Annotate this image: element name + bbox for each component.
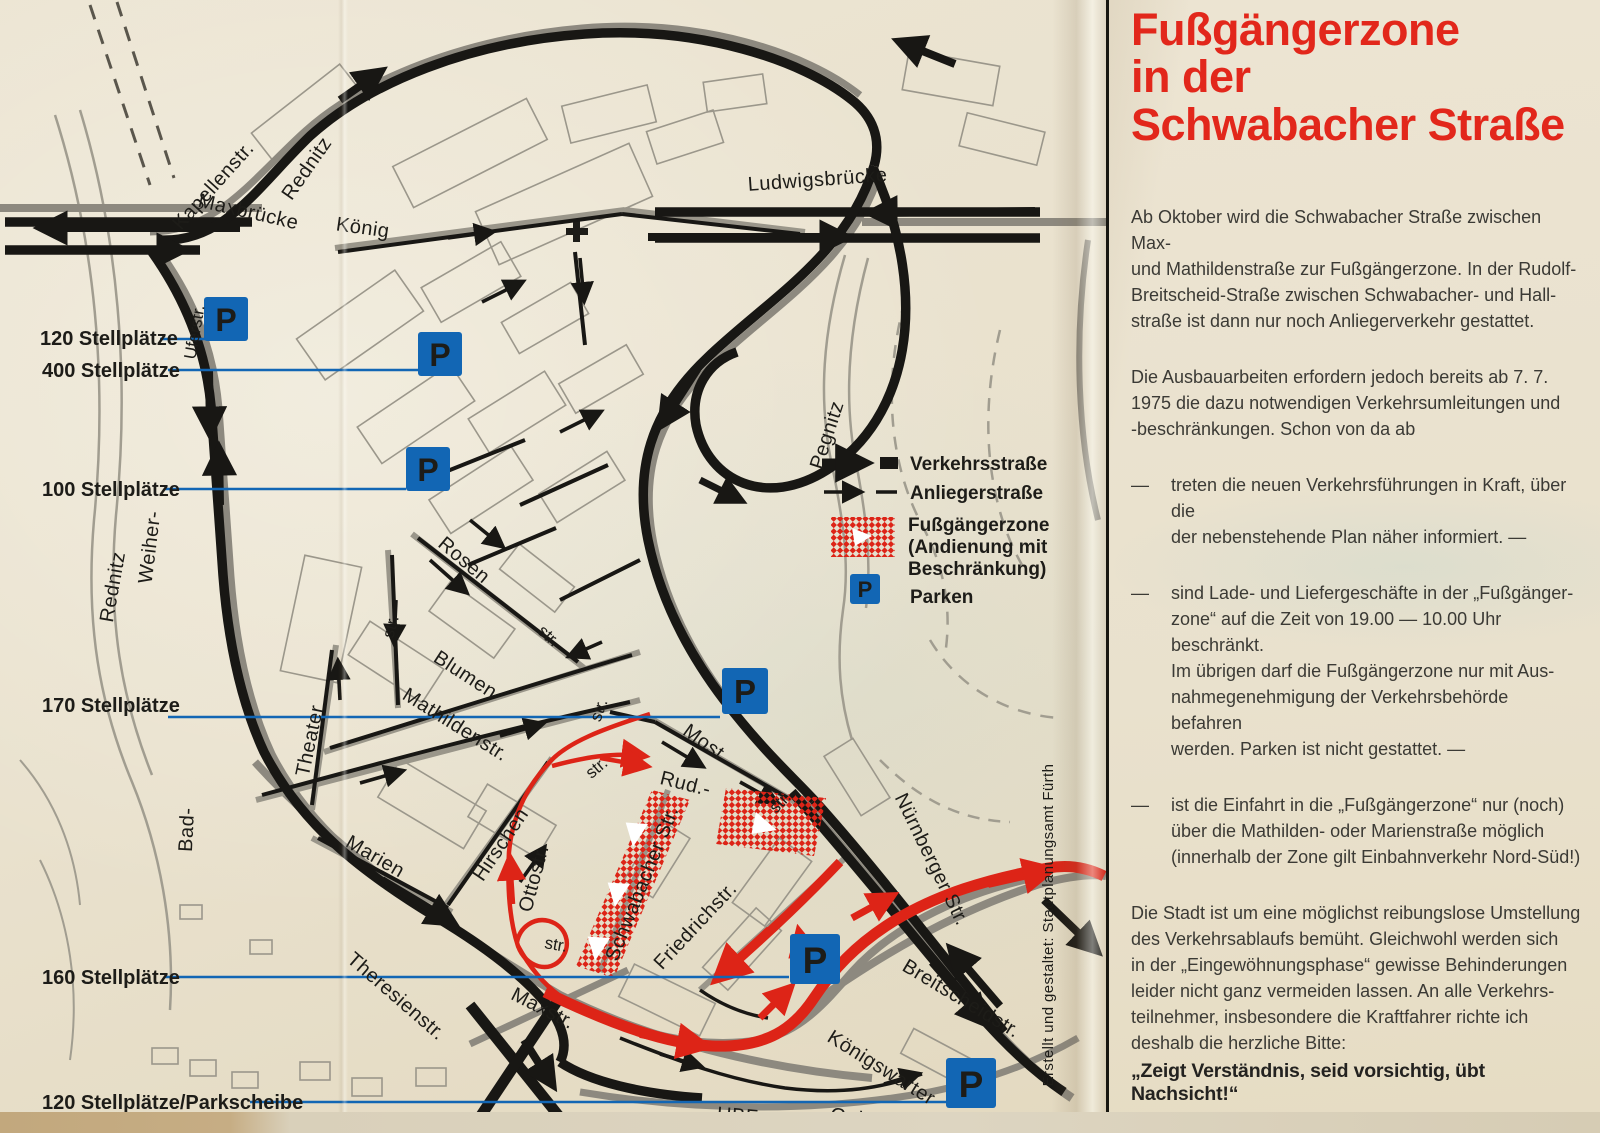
svg-text:P: P xyxy=(215,302,236,338)
appeal-quote: „Zeigt Verständnis, seid vorsichtig, übt… xyxy=(1131,1060,1583,1106)
parking-label-170: 170 Stellplätze xyxy=(42,695,180,717)
street-label: Rednitz xyxy=(96,550,130,624)
street-label: str. xyxy=(543,933,569,956)
parking-label-400: 400 Stellplätze xyxy=(42,360,180,382)
bullet-dash: — xyxy=(1131,580,1171,762)
construction-paragraph: Die Ausbauarbeiten erfordern jedoch bere… xyxy=(1131,364,1583,442)
svg-text:P: P xyxy=(417,452,438,488)
street-label: König xyxy=(335,213,391,242)
bullet-text: ist die Einfahrt in die „Fußgängerzone“ … xyxy=(1171,792,1580,870)
paper-fold xyxy=(1052,0,1106,1133)
street-label: str. xyxy=(586,696,612,724)
city-map-panel: 120 Stellplätze 400 Stellplätze 100 Stel… xyxy=(0,0,1106,1133)
legend-anliegerstrasse-label: Anliegerstraße xyxy=(910,483,1043,504)
legend-verkehrsstrasse-label: Verkehrsstraße xyxy=(910,454,1047,475)
legend-parken-label: Parken xyxy=(910,587,973,608)
parking-icon: P xyxy=(790,934,840,984)
cross-landmark-icon xyxy=(566,220,588,242)
bullet-item: — ist die Einfahrt in die „Fußgängerzone… xyxy=(1131,792,1583,870)
parking-icon: P xyxy=(406,447,450,491)
bullet-item: — treten die neuen Verkehrsführungen in … xyxy=(1131,472,1583,550)
bullet-text: treten die neuen Verkehrsführungen in Kr… xyxy=(1171,472,1583,550)
legend-parken-icon: P xyxy=(850,574,880,604)
street-label: Bad- xyxy=(175,807,199,852)
bullet-text: sind Lade- und Liefergeschäfte in der „F… xyxy=(1171,580,1583,762)
brochure-scan: 120 Stellplätze 400 Stellplätze 100 Stel… xyxy=(0,0,1600,1133)
parking-icon: P xyxy=(204,297,248,341)
bullet-item: — sind Lade- und Liefergeschäfte in der … xyxy=(1131,580,1583,762)
bullet-dash: — xyxy=(1131,792,1171,870)
parking-icon: P xyxy=(722,668,768,714)
parking-icon: P xyxy=(946,1058,996,1108)
closing-paragraph: Die Stadt ist um eine möglichst reibungs… xyxy=(1131,900,1583,1056)
svg-text:P: P xyxy=(959,1064,984,1105)
svg-text:P: P xyxy=(734,673,756,710)
parking-label-120: 120 Stellplätze xyxy=(40,328,178,350)
street-label: Friedrichstr. xyxy=(650,878,742,974)
street-label: Weiher- xyxy=(135,510,166,585)
bullet-dash: — xyxy=(1131,472,1171,550)
street-label: Theresienstr. xyxy=(343,948,450,1045)
parking-label-120-parkscheibe: 120 Stellplätze/Parkscheibe xyxy=(42,1092,303,1114)
bottom-paper-edge xyxy=(0,1112,1600,1133)
svg-text:P: P xyxy=(858,577,873,602)
parking-label-160: 160 Stellplätze xyxy=(42,967,180,989)
intro-paragraph: Ab Oktober wird die Schwabacher Straße z… xyxy=(1131,204,1583,334)
svg-text:P: P xyxy=(429,337,450,373)
page-title: Fußgängerzone in der Schwabacher Straße xyxy=(1131,6,1583,148)
svg-text:P: P xyxy=(803,940,828,981)
parking-icon: P xyxy=(418,332,462,376)
street-label: str. xyxy=(379,613,403,640)
verkehrs-routes xyxy=(5,33,1064,1120)
info-text-panel: Fußgängerzone in der Schwabacher Straße … xyxy=(1109,0,1600,1133)
parking-label-100: 100 Stellplätze xyxy=(42,479,180,501)
